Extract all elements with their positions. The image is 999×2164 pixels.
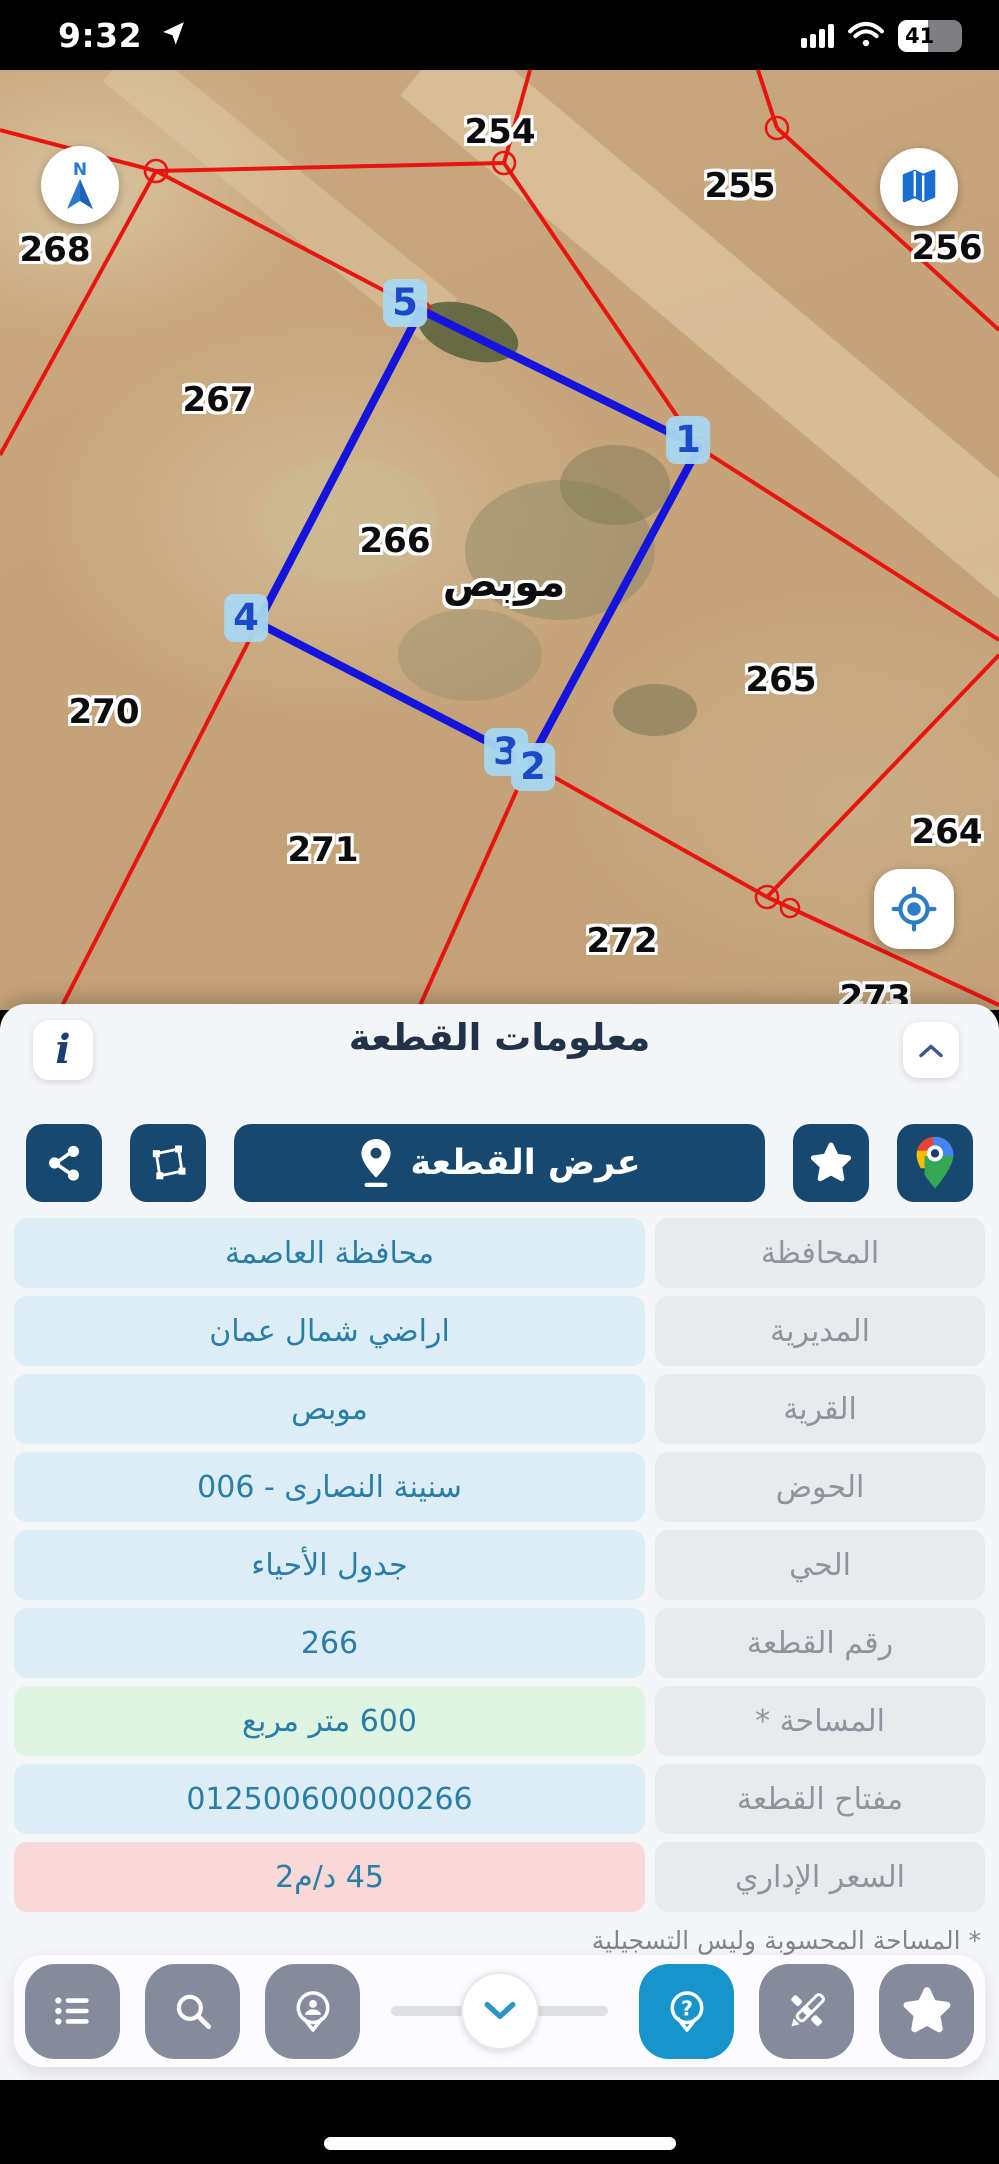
list-icon (50, 1988, 96, 2034)
row-value: موبص (14, 1374, 645, 1444)
parcel-number-label: 270 (69, 692, 140, 732)
row-value: محافظة العاصمة (14, 1218, 645, 1288)
action-buttons-row: عرض القطعة (0, 1124, 999, 1202)
parcel-number-label: 268 (20, 230, 91, 270)
vertex-marker: 1 (666, 416, 710, 464)
search-icon (170, 1988, 216, 2034)
chevron-up-icon (918, 1043, 944, 1058)
place-label: موبص (443, 558, 565, 606)
map-layers-button[interactable] (880, 148, 958, 226)
view-parcel-label: عرض القطعة (410, 1143, 640, 1183)
favorite-button[interactable] (793, 1124, 869, 1202)
row-value: 600 متر مربع (14, 1686, 645, 1756)
layers-list-button[interactable] (25, 1964, 120, 2059)
parcel-info-sheet: معلومات القطعة i (0, 1004, 999, 2080)
table-row-governorate: المحافظة محافظة العاصمة (14, 1218, 985, 1288)
table-row-basin: الحوض سنينة النصارى - 006 (14, 1452, 985, 1522)
parcel-query-button[interactable]: ? (639, 1964, 734, 2059)
help-pin-icon: ? (663, 1986, 711, 2036)
slider-thumb[interactable] (461, 1972, 539, 2050)
crosshair-icon (891, 886, 937, 932)
table-row-parcel-key: مفتاح القطعة 012500600000266 (14, 1764, 985, 1834)
favorites-button[interactable] (879, 1964, 974, 2059)
table-row-district: الحي جدول الأحياء (14, 1530, 985, 1600)
area-footnote: * المساحة المحسوبة وليس التسجيلية (0, 1926, 981, 1955)
my-location-button[interactable] (874, 869, 954, 949)
cellular-signal-icon (801, 24, 834, 48)
parcel-number-label: 256 (912, 228, 983, 268)
row-label: السعر الإداري (655, 1842, 985, 1912)
info-button[interactable]: i (33, 1020, 93, 1080)
home-indicator-area (0, 2080, 999, 2164)
parcel-number-label: 266 (360, 521, 431, 561)
row-label: الحي (655, 1530, 985, 1600)
row-value: 45 د/م2 (14, 1842, 645, 1912)
row-value: سنينة النصارى - 006 (14, 1452, 645, 1522)
design-tools-icon (784, 1988, 830, 2034)
folded-map-icon (898, 166, 940, 208)
person-pin-icon (289, 1986, 337, 2036)
vertex-marker: 4 (224, 594, 268, 642)
status-bar: 9:32 41 (0, 0, 999, 70)
row-label: القرية (655, 1374, 985, 1444)
row-value: اراضي شمال عمان (14, 1296, 645, 1366)
row-value: جدول الأحياء (14, 1530, 645, 1600)
clock: 9:32 (58, 16, 142, 55)
vertex-marker: 2 (511, 743, 555, 791)
row-label: الحوض (655, 1452, 985, 1522)
zoom-slider[interactable] (391, 1964, 608, 2059)
sheet-title: معلومات القطعة (0, 1004, 999, 1059)
location-pin-icon (358, 1138, 394, 1188)
row-label: المحافظة (655, 1218, 985, 1288)
chevron-down-icon (484, 2001, 516, 2021)
table-row-area: المساحة * 600 متر مربع (14, 1686, 985, 1756)
parcel-number-label: 267 (183, 380, 254, 420)
sheet-header: معلومات القطعة i (0, 1004, 999, 1100)
row-value: 266 (14, 1608, 645, 1678)
collapse-sheet-button[interactable] (903, 1022, 959, 1078)
battery-icon: 41 (898, 20, 955, 52)
measure-tools-button[interactable] (759, 1964, 854, 2059)
parcel-number-label: 272 (587, 921, 658, 961)
parcel-attributes-table: المحافظة محافظة العاصمة المديرية اراضي ش… (14, 1218, 985, 1912)
status-icons: 41 (801, 20, 955, 52)
map-overlay (0, 70, 999, 1010)
location-services-icon (160, 20, 187, 51)
table-row-directorate: المديرية اراضي شمال عمان (14, 1296, 985, 1366)
battery-percent: 41 (898, 24, 962, 48)
parcel-number-label: 271 (288, 830, 359, 870)
star-icon (809, 1141, 853, 1185)
search-button[interactable] (145, 1964, 240, 2059)
row-label: المديرية (655, 1296, 985, 1366)
row-label: مفتاح القطعة (655, 1764, 985, 1834)
share-icon (43, 1142, 85, 1184)
person-location-button[interactable] (265, 1964, 360, 2059)
compass-north-label: N (73, 162, 87, 178)
row-label: رقم القطعة (655, 1608, 985, 1678)
table-row-village: القرية موبص (14, 1374, 985, 1444)
bottom-toolbar: ? (14, 1955, 985, 2067)
parcel-number-label: 265 (746, 660, 817, 700)
home-indicator[interactable] (324, 2137, 676, 2150)
svg-text:?: ? (680, 1996, 692, 2020)
wifi-icon (848, 21, 884, 51)
app-screen: 9:32 41 (0, 0, 999, 2164)
parcel-number-label: 264 (912, 812, 983, 852)
parcel-number-label: 254 (465, 112, 536, 152)
star-icon (902, 1986, 952, 2036)
view-parcel-button[interactable]: عرض القطعة (234, 1124, 765, 1202)
share-button[interactable] (26, 1124, 102, 1202)
google-maps-pin-icon (914, 1135, 956, 1191)
row-value: 012500600000266 (14, 1764, 645, 1834)
google-maps-button[interactable] (897, 1124, 973, 1202)
info-icon: i (55, 1030, 70, 1070)
row-label: المساحة * (655, 1686, 985, 1756)
draw-polygon-button[interactable] (130, 1124, 206, 1202)
parcel-number-label: 255 (705, 166, 776, 206)
table-row-admin-price: السعر الإداري 45 د/م2 (14, 1842, 985, 1912)
table-row-parcel-number: رقم القطعة 266 (14, 1608, 985, 1678)
compass-needle-icon (66, 179, 94, 209)
compass-button[interactable]: N (41, 146, 119, 224)
vertex-marker: 5 (383, 279, 427, 327)
map-view[interactable]: 254255256268267266265270264271272273موبص… (0, 70, 999, 1010)
polygon-icon (147, 1142, 189, 1184)
